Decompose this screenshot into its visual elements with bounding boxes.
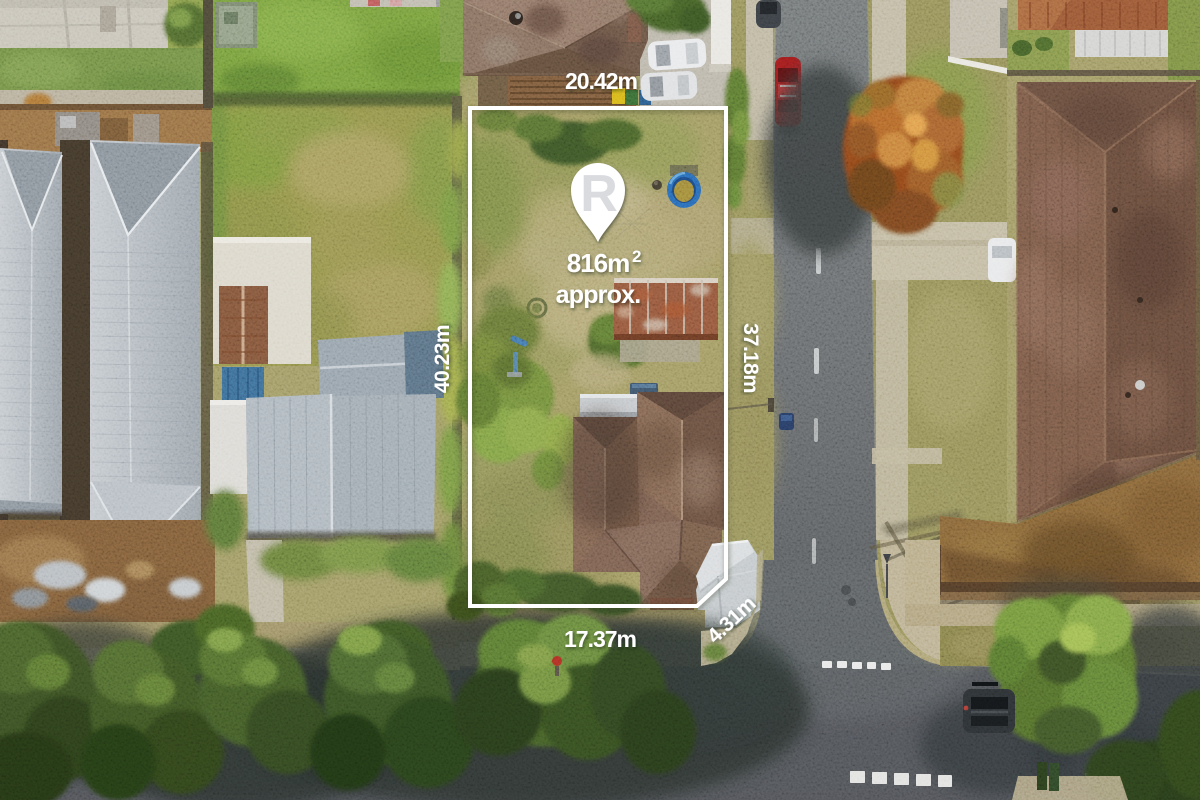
svg-text:816m: 816m (567, 248, 630, 278)
svg-text:2: 2 (632, 247, 641, 266)
svg-text:40.23m: 40.23m (431, 325, 454, 393)
svg-text:R: R (580, 165, 618, 223)
svg-text:20.42m: 20.42m (565, 68, 638, 94)
svg-text:37.18m: 37.18m (739, 323, 763, 393)
svg-text:approx.: approx. (556, 281, 641, 309)
svg-text:17.37m: 17.37m (564, 626, 637, 652)
